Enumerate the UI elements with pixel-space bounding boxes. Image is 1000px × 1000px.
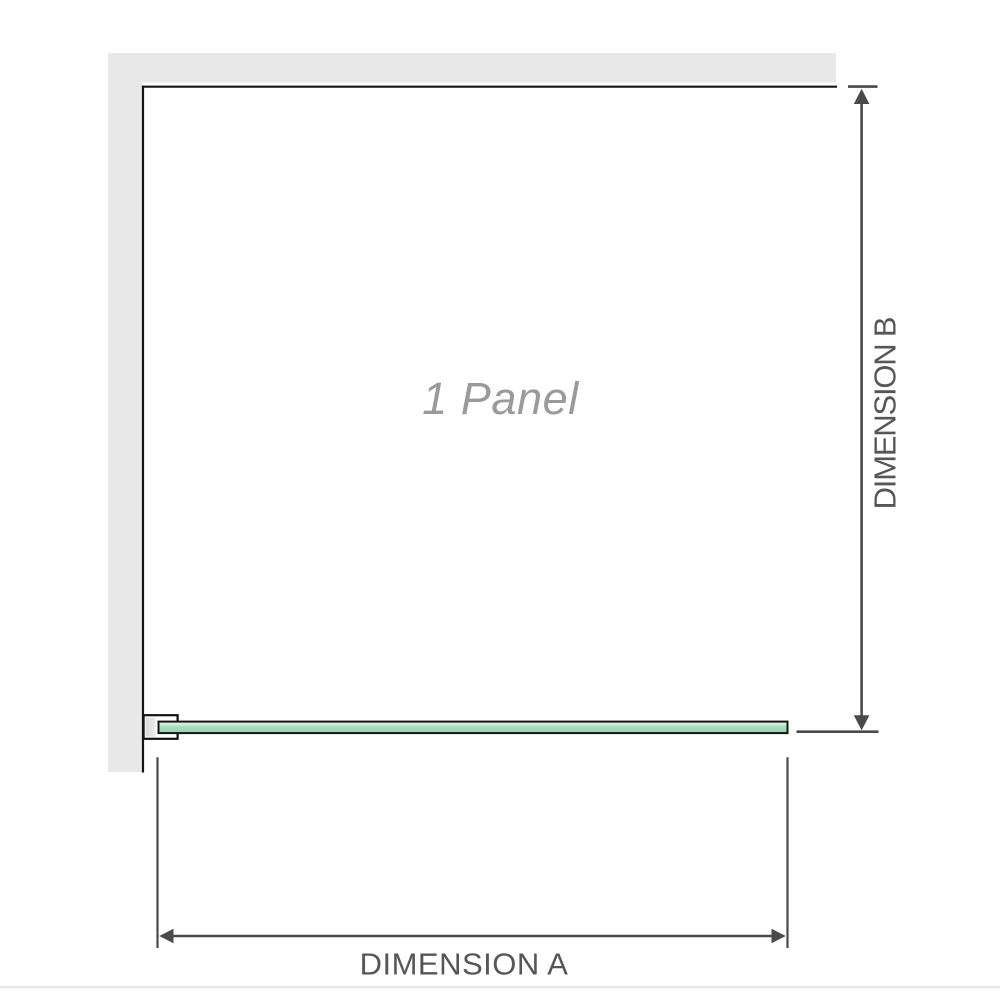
svg-text:DIMENSION A: DIMENSION A bbox=[360, 947, 569, 982]
svg-text:1 Panel: 1 Panel bbox=[422, 373, 580, 424]
svg-text:DIMENSION B: DIMENSION B bbox=[868, 317, 903, 509]
